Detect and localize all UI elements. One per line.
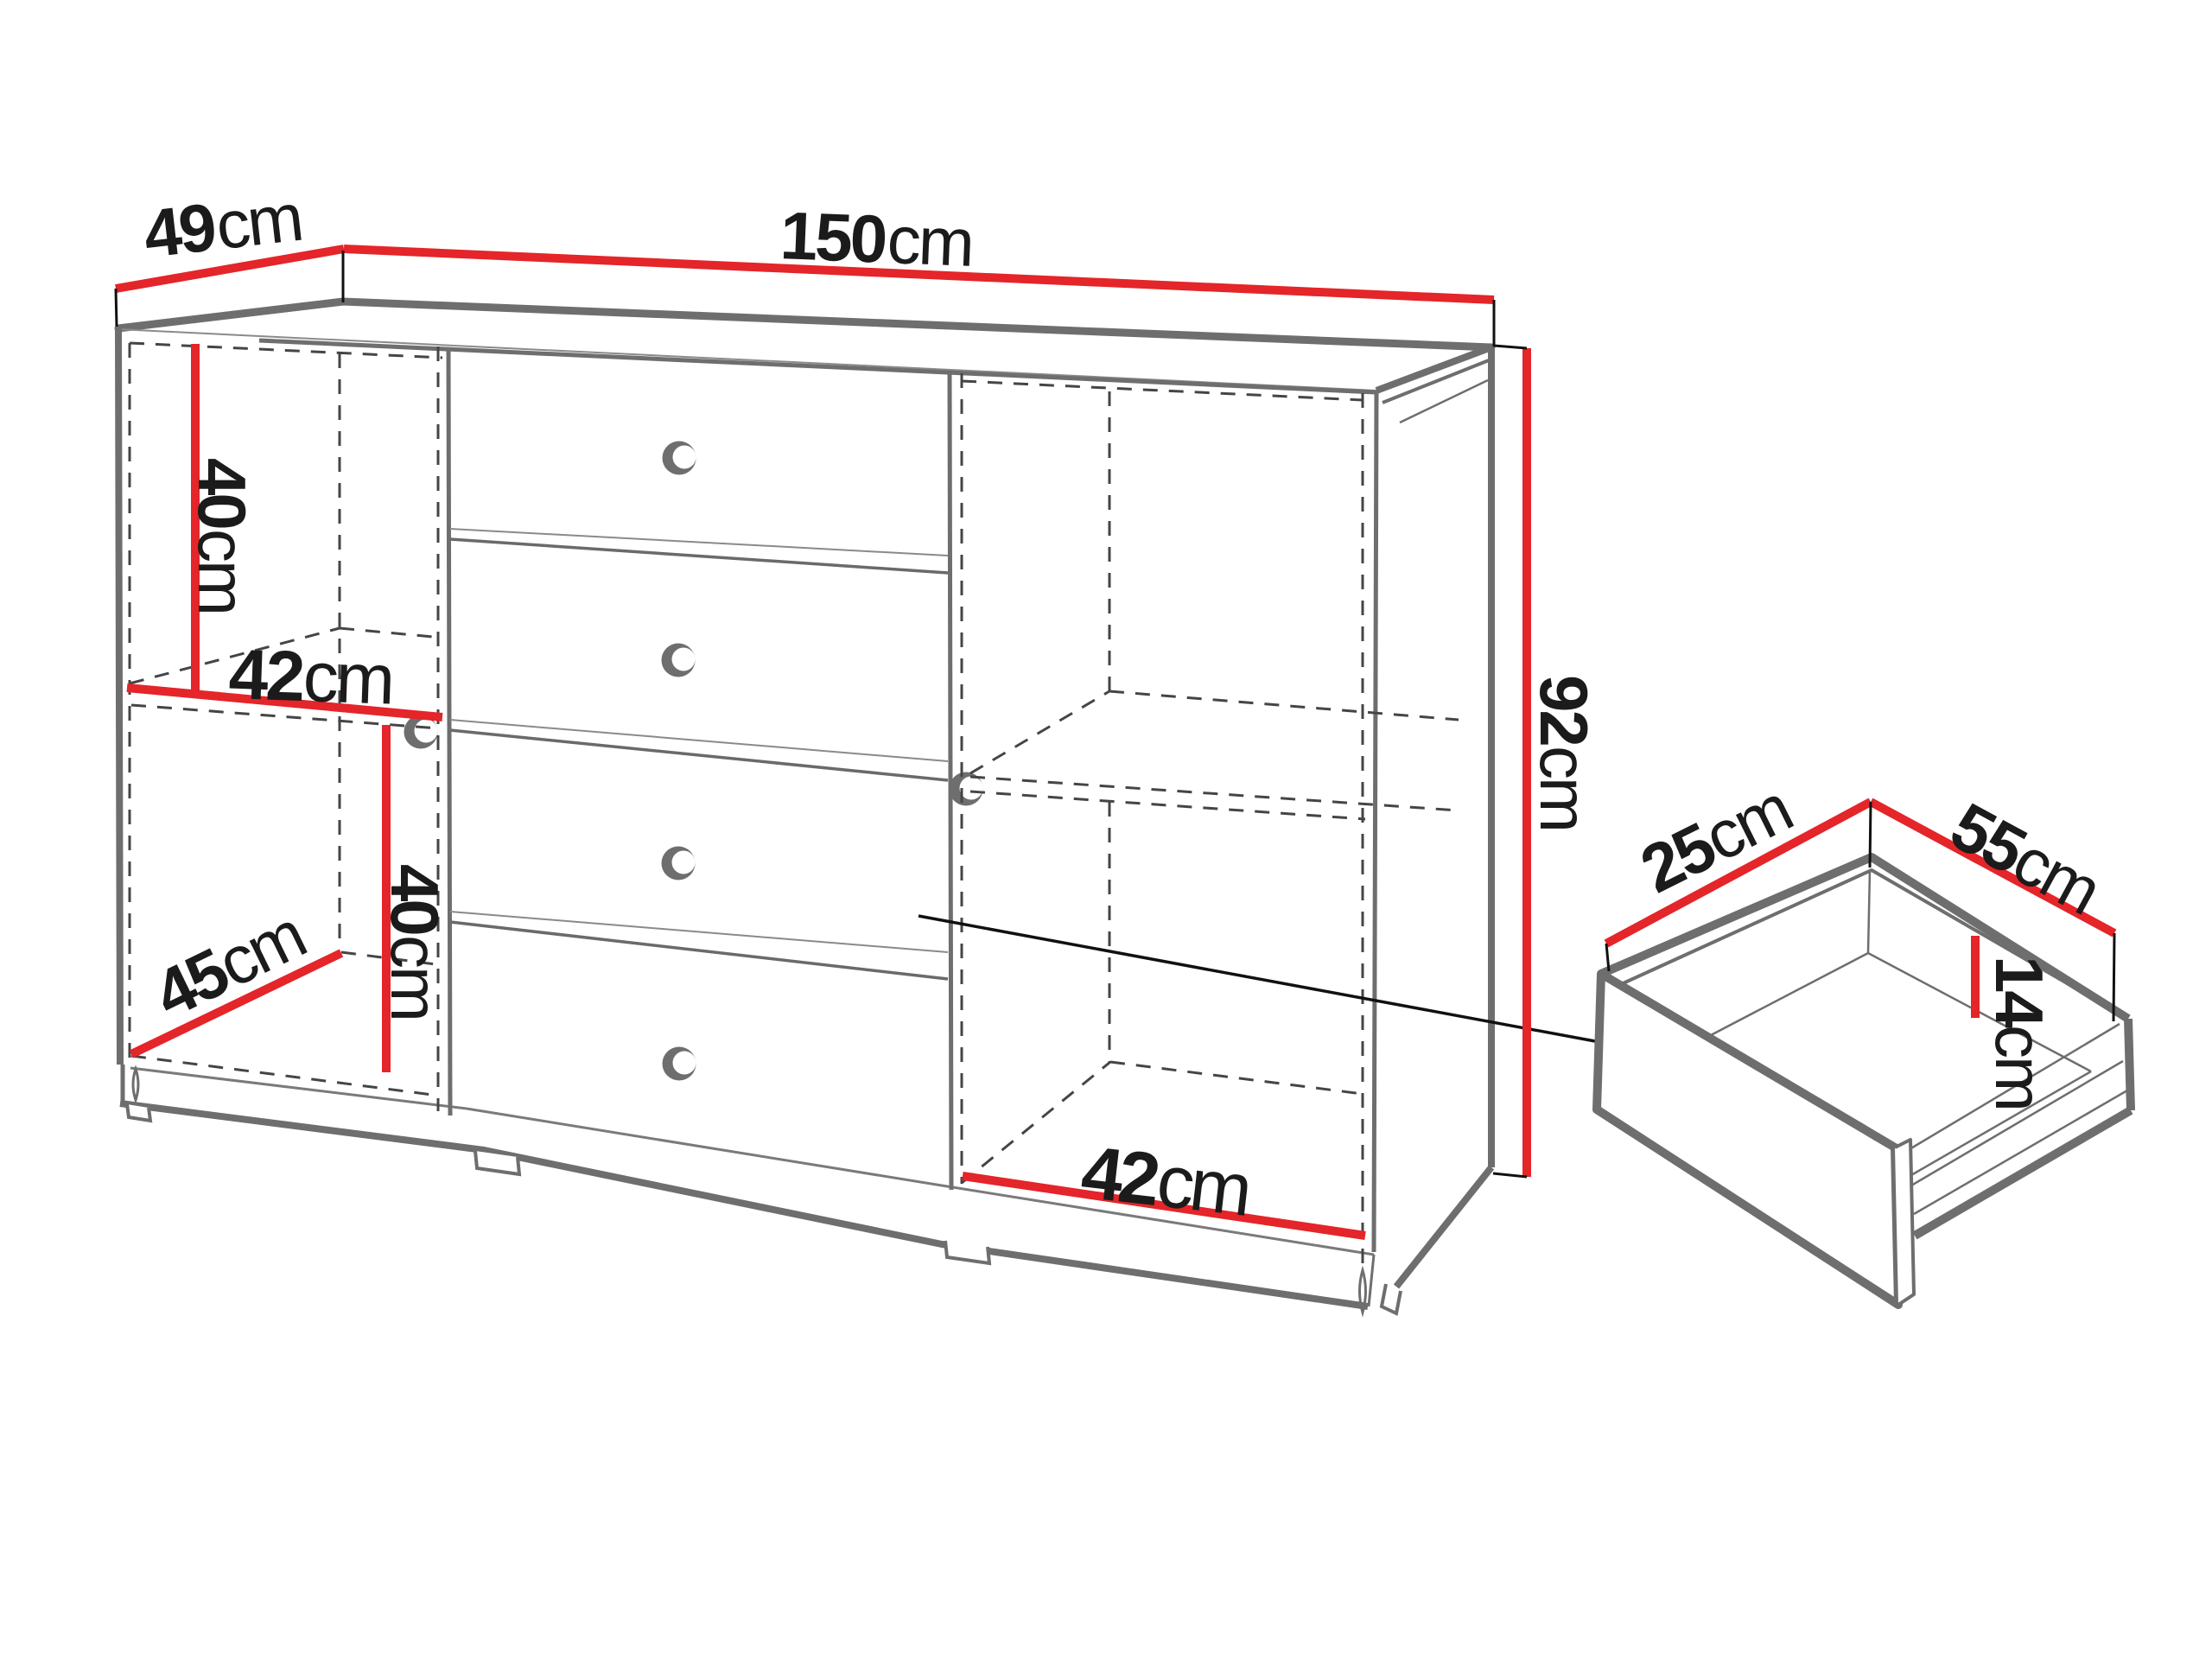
svg-text:cm: cm <box>302 638 393 720</box>
svg-text:42: 42 <box>227 635 304 716</box>
svg-text:14: 14 <box>1981 956 2057 1027</box>
svg-text:92: 92 <box>1526 675 1602 745</box>
svg-text:40: 40 <box>184 458 260 528</box>
svg-text:cm: cm <box>184 529 260 613</box>
svg-text:42: 42 <box>1077 1130 1162 1221</box>
svg-text:49: 49 <box>140 188 219 272</box>
svg-text:cm: cm <box>1981 1025 2057 1109</box>
svg-text:40: 40 <box>377 864 453 934</box>
svg-text:cm: cm <box>377 935 453 1020</box>
svg-text:cm: cm <box>1526 746 1602 830</box>
svg-text:150: 150 <box>779 197 887 277</box>
svg-text:cm: cm <box>1153 1139 1252 1231</box>
svg-text:cm: cm <box>886 201 973 281</box>
svg-text:cm: cm <box>212 179 304 264</box>
